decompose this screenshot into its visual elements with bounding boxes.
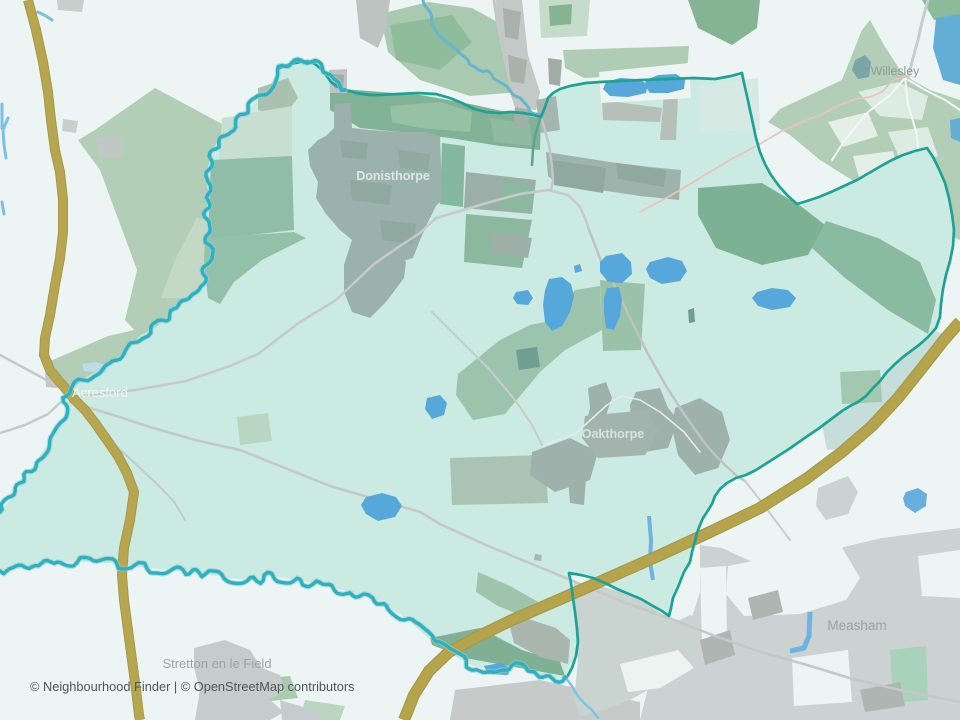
svg-text:Willesley: Willesley (871, 64, 920, 78)
svg-text:© Neighbourhood Finder | © Ope: © Neighbourhood Finder | © OpenStreetMap… (30, 679, 355, 694)
svg-text:Measham: Measham (827, 618, 886, 633)
svg-text:Acresford: Acresford (72, 385, 128, 400)
svg-text:Donisthorpe: Donisthorpe (356, 169, 430, 183)
svg-text:Oakthorpe: Oakthorpe (582, 427, 645, 441)
svg-text:Stretton en le Field: Stretton en le Field (162, 656, 271, 671)
